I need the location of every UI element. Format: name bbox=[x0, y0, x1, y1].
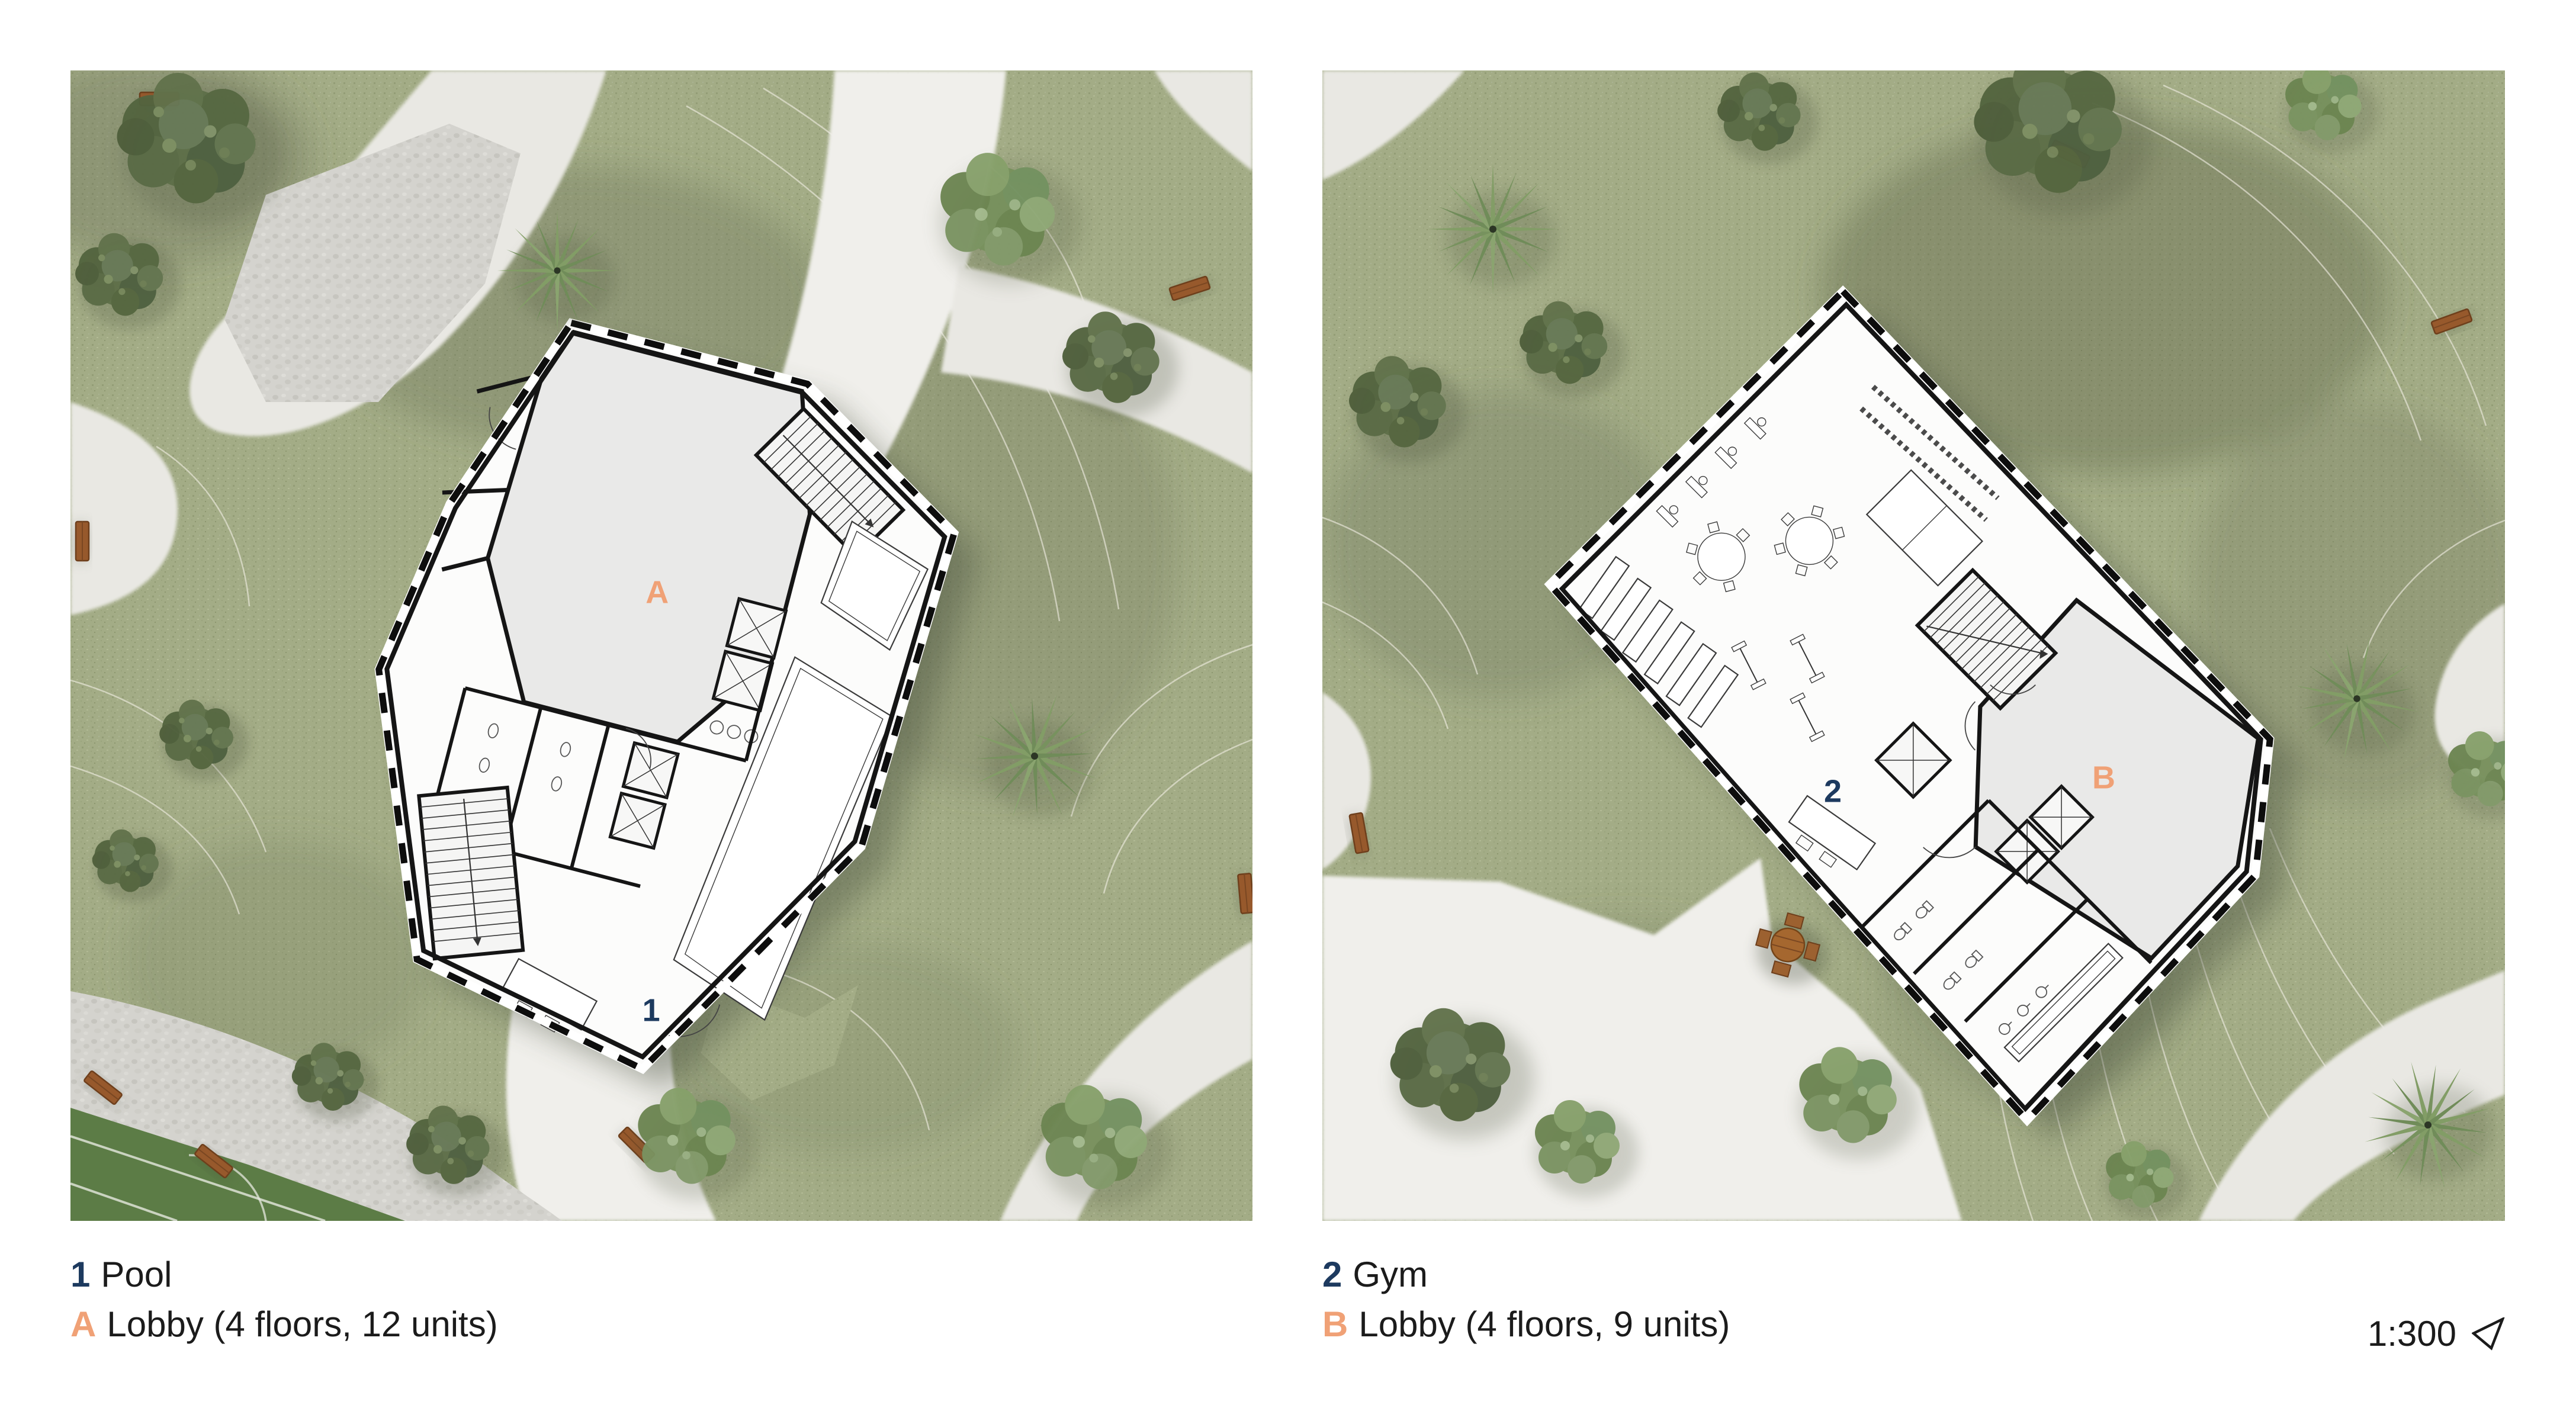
legend-building-2: 2Gym BLobby (4 floors, 9 units) bbox=[1322, 1254, 1730, 1354]
site-panel-building-2: B 2 bbox=[1322, 70, 2505, 1221]
scale-label: 1:300 bbox=[2368, 1316, 2456, 1352]
scale-and-north: 1:300 bbox=[2368, 1316, 2505, 1352]
legend-label-pool: Pool bbox=[101, 1255, 172, 1294]
legend-label-gym: Gym bbox=[1353, 1255, 1428, 1294]
plan-label-pool-1: 1 bbox=[643, 993, 660, 1028]
plan-label-gym-2: 2 bbox=[1824, 774, 1842, 809]
bench-icon bbox=[75, 522, 89, 561]
legend-entry-lobby-a: ALobby (4 floors, 12 units) bbox=[70, 1304, 498, 1345]
stair-southwest bbox=[419, 787, 523, 959]
legend-entry-lobby-b: BLobby (4 floors, 9 units) bbox=[1322, 1304, 1730, 1345]
legend-entry-pool: 1Pool bbox=[70, 1254, 498, 1295]
legend-key-b: B bbox=[1322, 1304, 1348, 1344]
north-arrow-icon bbox=[2472, 1317, 2505, 1351]
plan-label-lobby-b: B bbox=[2092, 760, 2115, 795]
legend-building-1: 1Pool ALobby (4 floors, 12 units) bbox=[70, 1254, 498, 1354]
legend-label-lobby-a: Lobby (4 floors, 12 units) bbox=[107, 1304, 497, 1344]
palm-tree-icon bbox=[497, 211, 617, 330]
legend-entry-gym: 2Gym bbox=[1322, 1254, 1730, 1295]
page: A 1 bbox=[0, 0, 2576, 1421]
site-plan-2-image: B 2 bbox=[1322, 70, 2505, 1221]
palm-tree-icon bbox=[1428, 164, 1559, 295]
site-panel-building-1: A 1 bbox=[70, 70, 1252, 1221]
legend-key-a: A bbox=[70, 1304, 96, 1344]
site-plan-1-image: A 1 bbox=[70, 70, 1252, 1221]
legend-key-1: 1 bbox=[70, 1255, 90, 1294]
plan-label-lobby-a: A bbox=[645, 575, 669, 610]
legend-key-2: 2 bbox=[1322, 1255, 1342, 1294]
legend-label-lobby-b: Lobby (4 floors, 9 units) bbox=[1358, 1304, 1730, 1344]
